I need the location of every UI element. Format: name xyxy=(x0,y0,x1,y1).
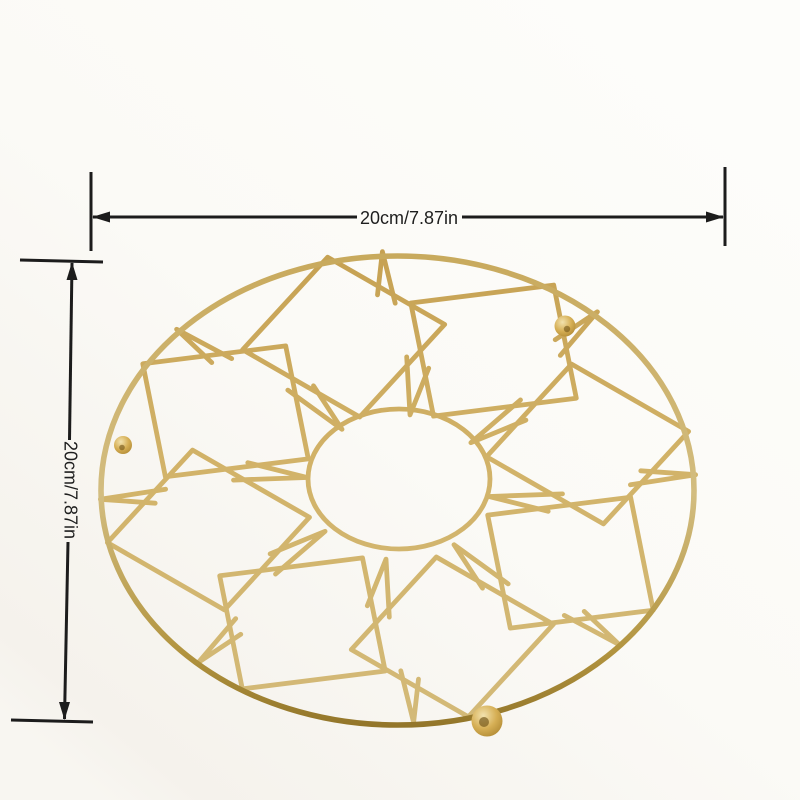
svg-text:20cm/7.87in: 20cm/7.87in xyxy=(360,208,458,228)
svg-text:20cm/7.87in: 20cm/7.87in xyxy=(60,441,80,539)
